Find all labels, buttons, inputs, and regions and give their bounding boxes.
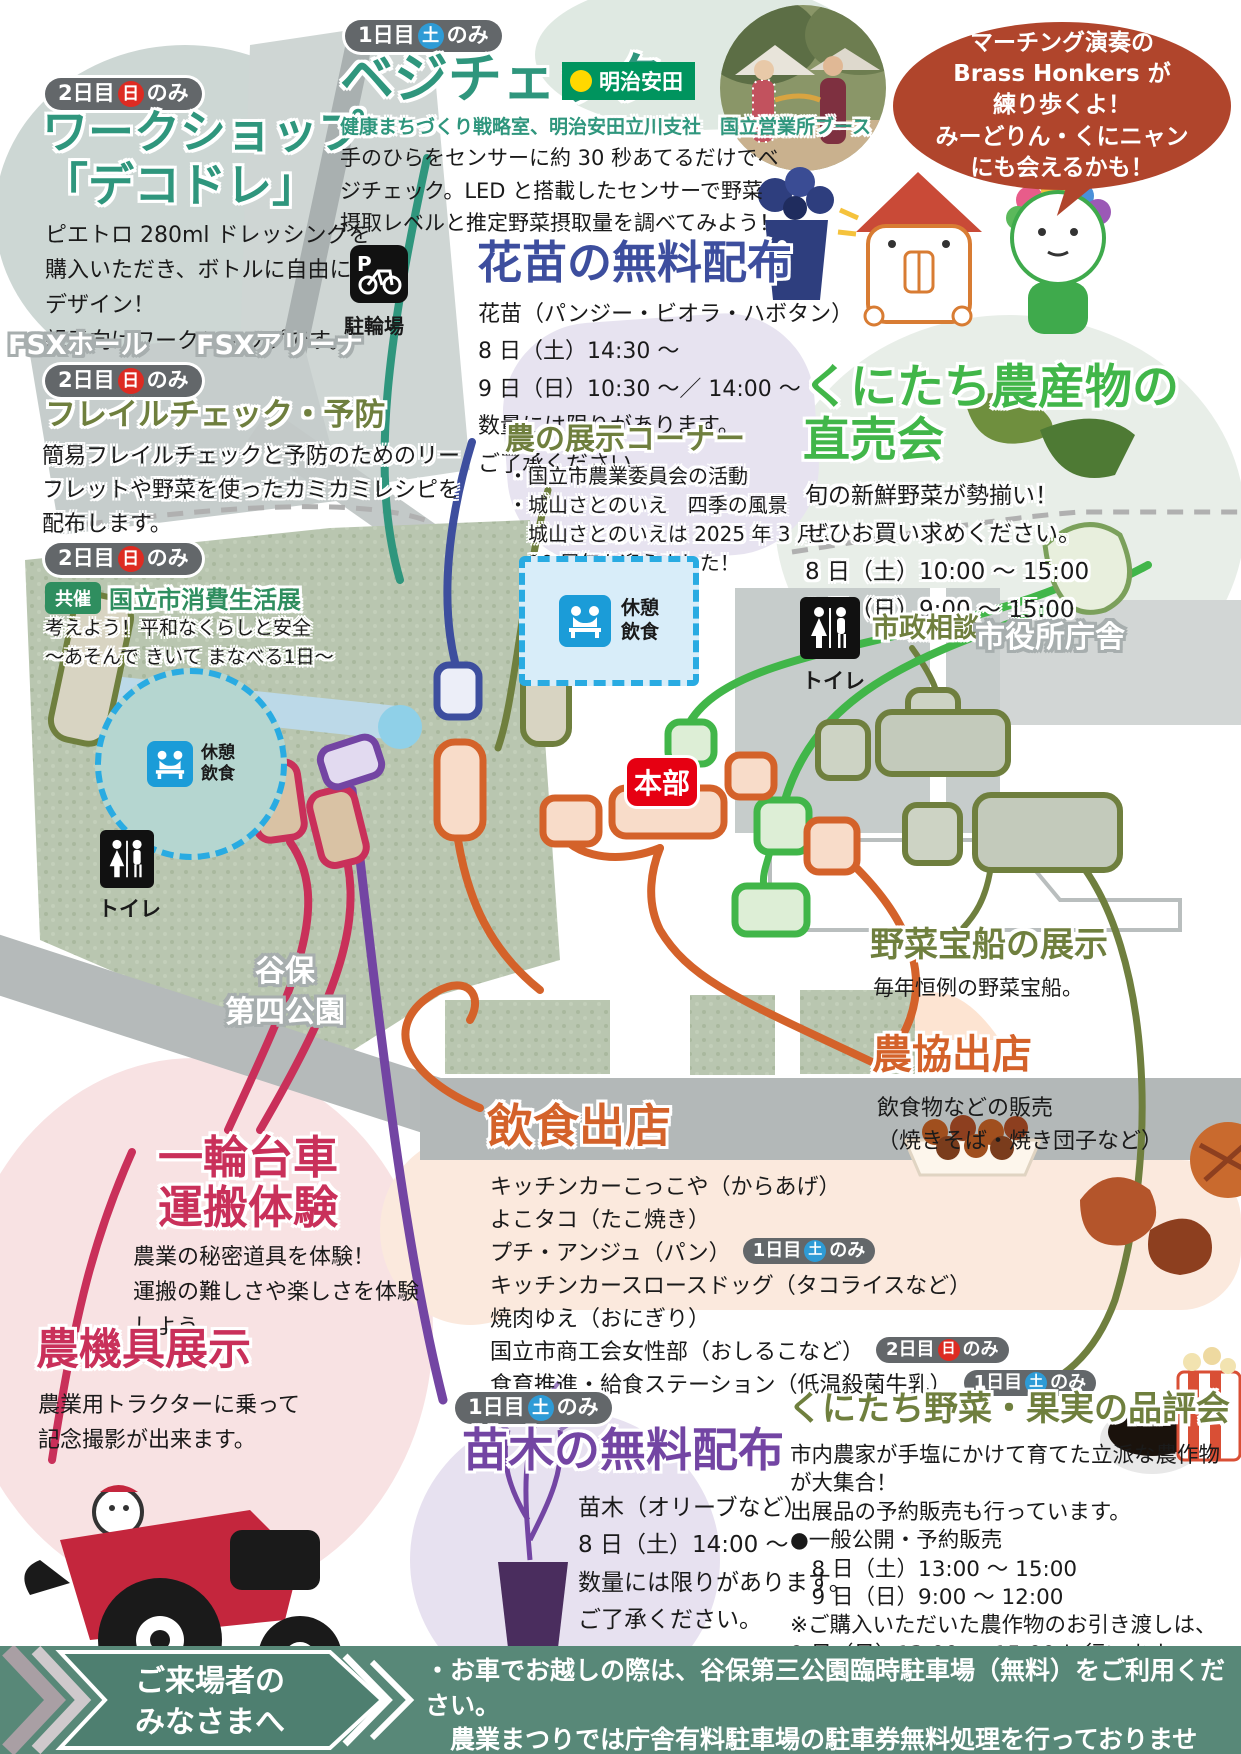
- badge-prefix: 1日目: [358, 23, 415, 48]
- takarabune-title: 野菜宝船の展示: [870, 926, 1108, 965]
- badge-day2-frailty: 2日目 日 のみ: [45, 365, 202, 397]
- city-hall-label: 市役所庁舎: [975, 612, 1125, 656]
- badge-day1-naegi: 1日目 土 のみ: [455, 1392, 612, 1424]
- badge-suffix: のみ: [147, 368, 189, 393]
- sunday-icon: 日: [118, 368, 144, 394]
- sunday-icon: 日: [118, 546, 144, 572]
- park-name-label: 谷保 第四公園: [205, 952, 365, 1033]
- frailty-title: フレイルチェック・予防: [45, 398, 385, 434]
- consumer-expo-title: 国立市消費生活展: [109, 580, 301, 615]
- chokubai-title: くにたち農産物の 直売会: [803, 362, 1179, 467]
- consumer-expo-heading: 共催 国立市消費生活展: [45, 580, 301, 615]
- vendor-label: キッチンカースロースドッグ（タコライスなど）: [490, 1268, 971, 1300]
- footer-label: ご来場者の みなさまへ: [95, 1662, 325, 1743]
- rest-area-icon: [559, 595, 611, 647]
- house-cat-mascot: [838, 172, 982, 325]
- badge-prefix: 1日目: [468, 1395, 525, 1420]
- sunday-icon: 日: [938, 1339, 960, 1361]
- badge-suffix: のみ: [147, 546, 189, 571]
- badge-suffix: のみ: [557, 1395, 599, 1420]
- vegecheck-body: 手のひらをセンサーに約 30 秒あてるだけでベ ジチェック。LED と搭載したセ…: [340, 142, 780, 240]
- vegecheck-subtitle: 健康まちづくり戦略室、明治安田立川支社 国立営業所ブース: [340, 112, 871, 139]
- saturday-icon: 土: [528, 1395, 554, 1421]
- badge-day1: 1日目 土 のみ: [743, 1238, 876, 1264]
- badge-prefix: 2日目: [58, 81, 115, 106]
- sunday-icon: 日: [118, 81, 144, 107]
- vendor-label: 焼肉ゆえ（おにぎり）: [490, 1301, 710, 1333]
- rest-area-box: 休憩 飲食: [519, 556, 699, 686]
- honbu-badge: 本部: [627, 758, 697, 806]
- vendor-label: 国立市商工会女性部（おしるこなど）: [490, 1334, 864, 1366]
- badge-suffix: のみ: [147, 81, 189, 106]
- frailty-body: 簡易フレイルチェックと予防のためのリー フレットや野菜を使ったカミカミレシピを …: [42, 440, 460, 542]
- list-item: 国立市商工会女性部（おしるこなど） 2日目 日 のみ: [490, 1333, 1096, 1366]
- toilet-label: トイレ: [98, 893, 161, 923]
- nokyo-title: 農協出店: [872, 1032, 1032, 1078]
- event-flyer-page: 2日目 日 のみ ワークショップ 「デコドレ」 ピエトロ 280ml ドレッシン…: [0, 0, 1241, 1754]
- fsx-hall-label: FSXホール: [8, 323, 148, 362]
- list-item: プチ・アンジュ（パン） 1日目 土 のみ: [490, 1234, 1096, 1267]
- fsx-arena-label: FSXアリーナ: [196, 323, 363, 362]
- badge-day2-consumer: 2日目 日 のみ: [45, 543, 202, 575]
- badge-suffix: のみ: [447, 23, 489, 48]
- list-item: キッチンカースロースドッグ（タコライスなど）: [490, 1267, 1096, 1300]
- vendor-label: キッチンカーこっこや（からあげ）: [490, 1169, 840, 1201]
- shisei-soudan-label: 市政相談: [872, 606, 980, 645]
- noukigu-body: 農業用トラクターに乗って 記念撮影が出来ます。: [38, 1388, 300, 1458]
- noukigu-title: 農機具展示: [36, 1326, 251, 1375]
- bicycle-parking-icon: P: [350, 245, 408, 303]
- vendor-label: プチ・アンジュ（パン）: [490, 1235, 731, 1267]
- list-item: よこタコ（たこ焼き）: [490, 1201, 1096, 1234]
- tenji-corner-title: 農の展示コーナー: [505, 423, 745, 458]
- footer-banner: ご来場者の みなさまへ ・お車でお越しの際は、谷保第三公園臨時駐車場（無料）をご…: [0, 1646, 1241, 1754]
- badge-prefix: 2日目: [58, 546, 115, 571]
- ichirin-title: 一輪台車 運搬体験: [118, 1133, 378, 1232]
- hanae-title: 花苗の無料配布: [477, 237, 792, 289]
- badge-prefix: 2日目: [58, 368, 115, 393]
- rest-area-icon: [147, 741, 193, 787]
- toilet-icon: [800, 597, 860, 659]
- parking-p-glyph: P: [357, 252, 372, 276]
- badge-day2: 2日目 日 のみ: [876, 1337, 1009, 1363]
- takarabune-body: 毎年恒例の野菜宝船。: [873, 972, 1083, 1002]
- meiji-yasuda-label: 明治安田: [599, 66, 683, 96]
- toilet-icon: [100, 830, 154, 888]
- hinpyokai-title: くにたち野菜・果実の品評会: [788, 1390, 1230, 1429]
- naegi-title: 苗木の無料配布: [462, 1424, 784, 1477]
- toilet-label: トイレ: [802, 665, 865, 695]
- list-item: キッチンカーこっこや（からあげ）: [490, 1168, 1096, 1201]
- workshop-title: ワークショップ 「デコドレ」: [42, 106, 364, 212]
- nokyo-body: 飲食物などの販売 （焼きそば・焼き団子など）: [877, 1092, 1163, 1158]
- rest-area-label: 休憩 飲食: [621, 597, 659, 645]
- list-item: 焼肉ゆえ（おにぎり）: [490, 1300, 1096, 1333]
- saturday-icon: 土: [804, 1240, 826, 1262]
- sun-icon: [570, 70, 592, 92]
- inshoku-list: キッチンカーこっこや（からあげ） よこタコ（たこ焼き） プチ・アンジュ（パン） …: [490, 1168, 1096, 1399]
- rest-area-label: 休憩 飲食: [201, 743, 235, 786]
- kyosai-badge: 共催: [45, 582, 101, 614]
- saturday-icon: 土: [418, 23, 444, 49]
- hinpyokai-body: 市内農家が手塩にかけて育てた立派な農作物 が大集合！ 出展品の予約販売も行ってい…: [790, 1442, 1220, 1669]
- bicycle-parking-label: 駐輪場: [344, 310, 404, 339]
- consumer-expo-body: 考えよう！平和なくらしと安全 ～あそんで きいて まなべる1日～: [45, 614, 334, 671]
- footer-body: ・お車でお越しの際は、谷保第三公園臨時駐車場（無料）をご利用ください。 農業まつ…: [425, 1654, 1241, 1754]
- vendor-label: よこタコ（たこ焼き）: [490, 1202, 710, 1234]
- inshoku-title: 飲食出店: [487, 1100, 671, 1153]
- meiji-yasuda-badge: 明治安田: [562, 62, 695, 100]
- marching-speech-bubble: マーチング演奏の Brass Honkers が 練り歩くよ！ みーどりん・くに…: [893, 22, 1231, 190]
